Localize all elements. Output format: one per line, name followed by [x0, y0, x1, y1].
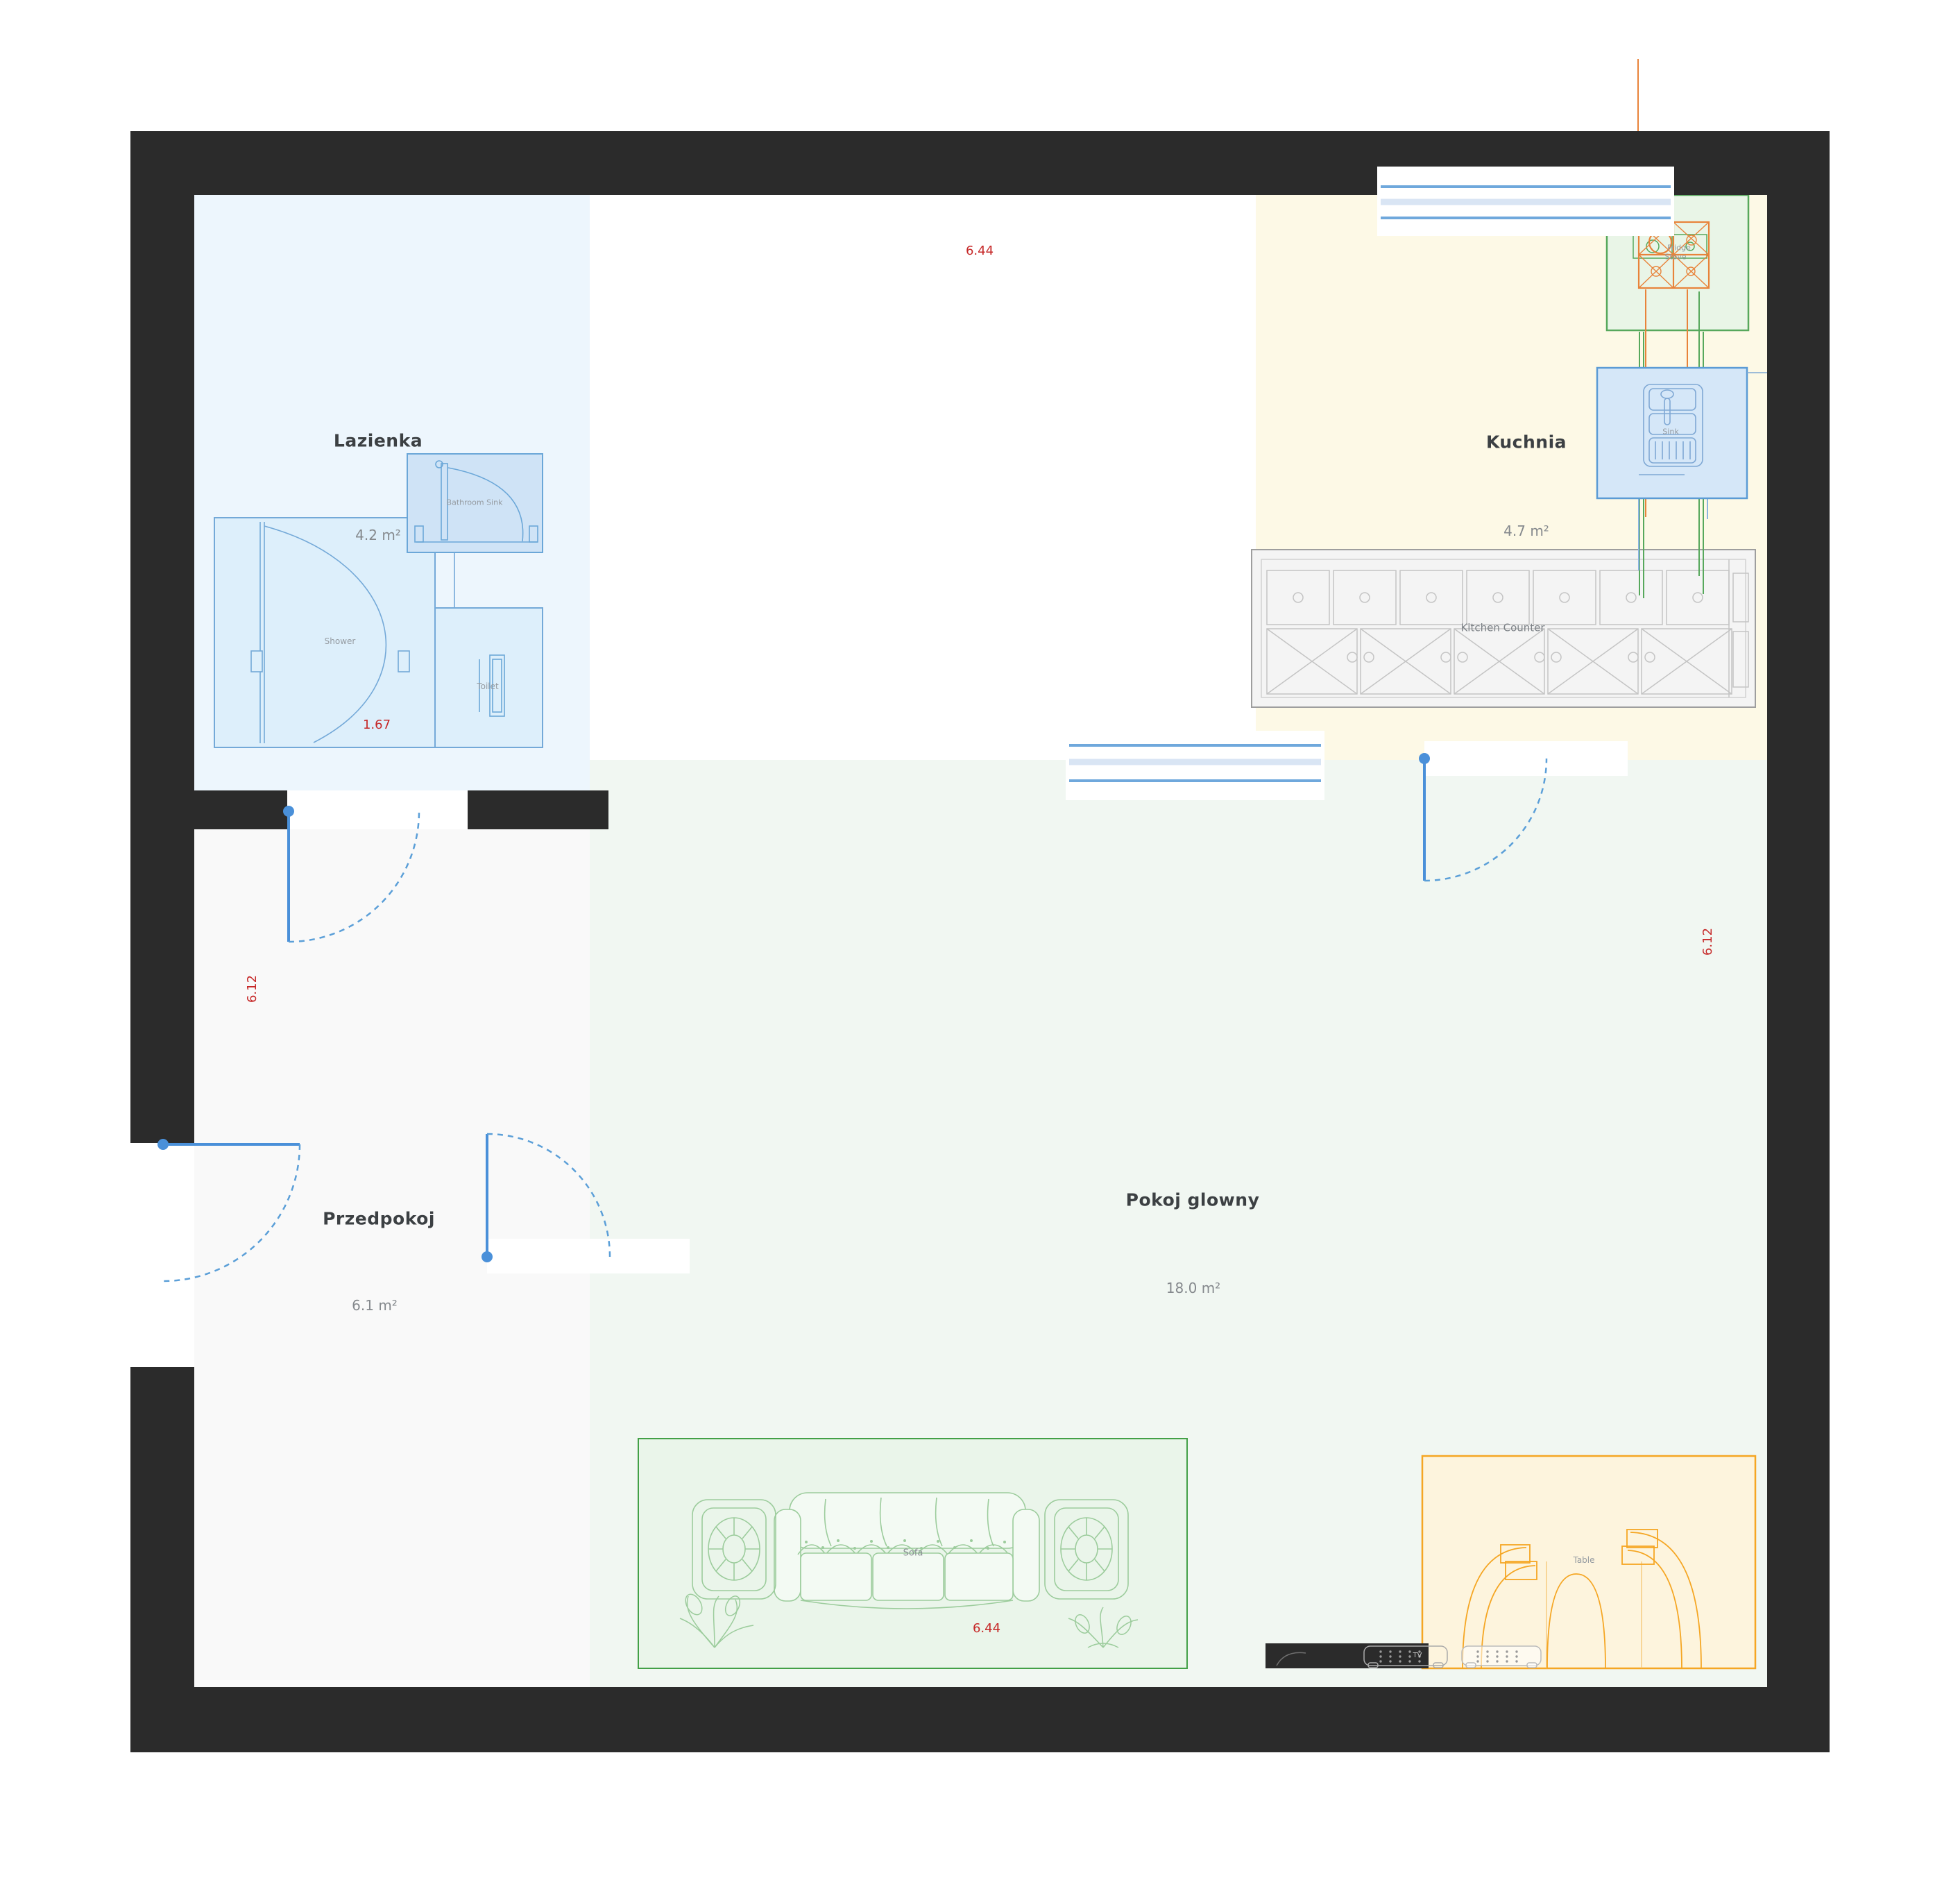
- dimension-bottom: 6.44: [973, 1623, 1000, 1635]
- dimension-shower-width: 1.67: [363, 719, 391, 731]
- kitchen-sink: [1597, 368, 1767, 498]
- floor-plan-drawing: [0, 0, 1960, 1880]
- room-area-przedpokoj: 6.1 m²: [352, 1298, 398, 1312]
- wall-right: [1767, 195, 1830, 1687]
- room-area-pokoj-glowny: 18.0 m²: [1166, 1281, 1220, 1295]
- wall-bathroom-b: [468, 790, 608, 829]
- wall-bathroom-a: [194, 790, 287, 829]
- room-label-pokoj-glowny: Pokoj glowny: [1126, 1192, 1260, 1209]
- wall-left-lower: [130, 1367, 194, 1687]
- tv-unit: [1266, 1643, 1541, 1668]
- room-label-przedpokoj: Przedpokoj: [323, 1210, 435, 1228]
- shower: [214, 518, 435, 747]
- window-top: [1377, 167, 1674, 236]
- label-table: Table: [1573, 1556, 1594, 1564]
- label-sofa: Sofa: [903, 1549, 923, 1558]
- room-label-lazienka: Lazienka: [334, 432, 423, 450]
- dimension-left: 6.12: [246, 975, 259, 1003]
- window-middle: [1066, 731, 1324, 800]
- toilet: [435, 608, 543, 747]
- dimension-top: 6.44: [966, 245, 994, 257]
- room-label-kuchnia: Kuchnia: [1486, 434, 1567, 451]
- label-sink: Sink: [1662, 428, 1678, 436]
- dimension-right: 6.12: [1702, 928, 1714, 956]
- label-kitchen-counter: Kitchen Counter: [1460, 623, 1544, 634]
- wall-left-upper: [130, 195, 194, 1143]
- label-stove: Stove: [1664, 253, 1686, 261]
- label-fridge: Fridge: [1667, 244, 1691, 252]
- bench-seat: [1462, 1646, 1541, 1668]
- label-shower: Shower: [325, 637, 356, 645]
- room-area-kuchnia: 4.7 m²: [1503, 524, 1549, 538]
- label-tv: TV: [1413, 1652, 1422, 1659]
- room-area-lazienka: 4.2 m²: [355, 528, 401, 542]
- label-bathroom-sink: Bathroom Sink: [447, 499, 503, 507]
- label-toilet: Toilet: [477, 682, 498, 691]
- wall-bottom: [130, 1687, 1830, 1752]
- floor-plan: Lazienka 4.2 m² Kuchnia 4.7 m² Przedpoko…: [0, 0, 1960, 1880]
